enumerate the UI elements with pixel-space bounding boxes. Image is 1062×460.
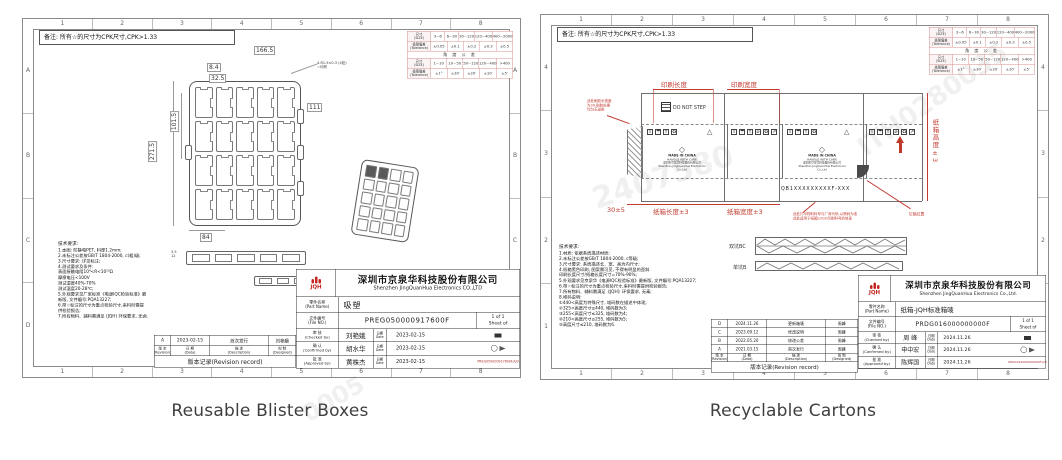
packaging-icon: ⇧: [731, 129, 737, 135]
stitch-note: 钉箱位置: [909, 212, 924, 217]
iso-pocket: [373, 193, 385, 206]
sign-name: 陈辉国: [896, 356, 926, 368]
grid-col-label: 4: [212, 19, 272, 29]
date-label: 日期 Date: [926, 344, 938, 356]
iso-pocket: [395, 211, 407, 224]
iso-pocket: [363, 178, 375, 191]
sign-name: 申中宏: [896, 344, 926, 356]
iso-pocket: [371, 207, 383, 220]
blister-pocket: [236, 121, 254, 152]
blister-pocket: [236, 189, 254, 220]
tol-size-range: 6~30: [967, 28, 981, 38]
column-ruler-top: 12345678: [551, 15, 1038, 25]
revision-record: A 2023-02-15 首次发行 刘艳娥 版 本 (Revision) 日 期…: [154, 335, 296, 368]
rev-letter: D: [712, 320, 729, 328]
date-label: 日期 Date: [374, 329, 387, 342]
tol-size-header: 尺寸 (SIZE): [408, 59, 432, 69]
tol-angle-range: 10~50: [969, 55, 985, 65]
row-ruler-left: 4321: [541, 25, 551, 369]
dim-height: 101.5: [170, 111, 179, 132]
packaging-icons-row: ⇧☂Y♻: [787, 129, 817, 135]
grid-row-label: 3: [1038, 111, 1048, 197]
sheet-cell: 1 of 1Sheet of: [1011, 317, 1046, 332]
tol-size-value: ±0.2: [464, 42, 480, 52]
grid-row-label: 1: [541, 284, 551, 369]
rev-desc: 首次发行: [210, 336, 270, 346]
tray-edge-tab: [297, 181, 304, 196]
print-width-dim-line: [727, 89, 779, 90]
tol-size-range: 120~400: [475, 32, 493, 42]
grid-col-label: 7: [917, 369, 978, 379]
shipping-mark: ◇ MADE IN CHINA HANDLE WITH CARE 深圳市京泉华科…: [654, 145, 710, 194]
rev-letter: A: [712, 345, 729, 353]
grid-row-label: 4: [1038, 25, 1048, 111]
grid-col-label: 4: [212, 367, 272, 377]
tol-angle-value: ±1°: [431, 69, 447, 79]
extension-line: [713, 89, 714, 123]
packaging-icon: ⇗: [771, 129, 777, 135]
dimension-line: [173, 81, 174, 226]
blister-drawing-sheet: 12345678 12345678 ABCD ABCD 备注: 所有☆的尺寸为C…: [22, 18, 521, 378]
tol-angle-range: >400: [497, 59, 513, 69]
tol-size-value: ±0.05: [953, 38, 969, 48]
grid-col-label: 5: [272, 367, 332, 377]
grid-col-label: 2: [612, 15, 673, 25]
cpk-note: 备注: 所有☆的尺寸为CPK尺寸,CPK>1.33: [39, 30, 235, 45]
tol-angle-band: 角 度 公 差: [930, 48, 1035, 55]
grid-col-label: 4: [734, 15, 795, 25]
projection-symbol-icon: [491, 345, 498, 352]
projection-symbol-icon: [1029, 347, 1035, 352]
sign-name: 刘艳娥: [339, 329, 374, 342]
grid-col-label: 8: [451, 367, 510, 377]
tol-angle-value: ±5′: [1019, 65, 1035, 75]
iso-pocket: [383, 209, 395, 222]
tol-tol-header: 极限偏差 (Tolerance): [408, 42, 432, 52]
tol-size-header: 尺寸 (SIZE): [930, 55, 954, 65]
iso-pocket: [397, 197, 409, 210]
tol-size-value: ±0.5: [1019, 38, 1035, 48]
screenshot-root: { "captions":{"left":"Reusable Blister B…: [0, 0, 1062, 460]
iso-pocket: [389, 169, 401, 182]
grid-col-label: 1: [33, 367, 93, 377]
blister-pocket: [195, 87, 213, 118]
company-name-en: Shenzhen JingQuanHua Electronics CO.,LTD: [373, 286, 482, 292]
tol-angle-range: 50~120: [463, 59, 479, 69]
tol-angle-range: 1~10: [953, 55, 969, 65]
dim-pitch: 32.5: [209, 74, 226, 83]
part-name-label: 零件名称 (Part Name): [297, 297, 339, 312]
tol-size-range: 30~120: [981, 28, 997, 38]
blister-pocket: [195, 155, 213, 186]
glue-flap-dim-line: [627, 204, 641, 205]
tolerance-table: 尺寸 (SIZE)3~66~3030~120120~400400~2000 极限…: [407, 31, 513, 79]
signature-rows: 审 核 (Checked by) 周 峰 日期 Date 2024.11.26 …: [859, 332, 1010, 368]
grid-row-label: 4: [541, 25, 551, 111]
caption-left: Reusable Blister Boxes: [171, 401, 368, 421]
grid-col-label: 2: [93, 367, 153, 377]
packaging-icon: Y: [747, 129, 753, 135]
carton-width-label: 纸箱宽度±3: [727, 206, 763, 216]
sign-date: 2023-02-15: [387, 329, 435, 342]
packaging-icons-row: ⇧☂Y⌀♻⇗: [869, 129, 915, 135]
do-not-step-mark: DO NOT STEP: [661, 102, 728, 112]
tol-angle-range: 1~10: [431, 59, 447, 69]
rev-header: 描 述 (Description): [210, 346, 270, 356]
tol-size-range: 400~2000: [1015, 28, 1035, 38]
single-wall-label: 单坑B: [733, 264, 746, 271]
tol-size-value: ±0.5: [497, 42, 513, 52]
tol-size-range: 30~120: [459, 32, 475, 42]
grid-row-label: B: [23, 114, 33, 199]
packaging-icon: ⌀: [893, 129, 899, 135]
date-label: 日期 Date: [374, 342, 387, 355]
sign-role: 确 认 (Confirmed by): [859, 344, 896, 356]
grid-col-label: 2: [93, 19, 153, 29]
file-ref: PREG050000917600F.A/0: [477, 360, 518, 364]
grid-col-label: 3: [673, 15, 734, 25]
packaging-icon: Y: [803, 129, 809, 135]
sheet-cell: 1 of 1Sheet of: [477, 313, 520, 329]
packaging-icon: ☂: [655, 129, 661, 135]
warning-triangle-icon: △: [844, 129, 849, 136]
iso-pocket: [385, 195, 397, 208]
tol-size-header: 尺寸 (SIZE): [408, 32, 432, 42]
iso-pocket: [375, 180, 387, 193]
date-label: 日期 Date: [926, 356, 938, 368]
blister-tray-iso-view: [350, 159, 419, 243]
carton-top-edge: [641, 93, 922, 94]
tol-size-value: ±0.3: [480, 42, 496, 52]
tol-angle-range: >400: [1019, 55, 1035, 65]
iso-pocket: [387, 182, 399, 195]
part-name-label: 零件名称 (Part Name): [859, 302, 896, 316]
grid-col-label: 8: [978, 369, 1038, 379]
tol-angle-value: ±10′: [480, 69, 496, 79]
do-not-step-icon: [661, 102, 671, 112]
rev-by: 周峰: [826, 320, 858, 328]
code-print-note: 此处打印物料料号与厂商代码,以喷码为准 此处适用于纸箱LOGO印刷料号的信息: [793, 212, 857, 221]
extension-line: [653, 89, 654, 123]
blister-pocket: [195, 189, 213, 220]
blister-pocket: [216, 121, 234, 152]
grid-row-label: C: [23, 199, 33, 284]
grid-col-label: 6: [332, 367, 392, 377]
tol-angle-value: ±30′: [969, 65, 985, 75]
rev-date: 2023.09.12: [728, 328, 767, 336]
grid-col-label: 2: [612, 369, 673, 379]
blister-pocket: [257, 189, 275, 220]
dim-total-height: 271.5: [148, 141, 157, 162]
packaging-icon: ♻: [763, 129, 769, 135]
tol-angle-range: 120~400: [1001, 55, 1019, 65]
packaging-icon: ⇧: [647, 129, 653, 135]
sign-role: 确 认 (Confirmed by): [297, 342, 339, 355]
iso-pocket: [368, 220, 380, 233]
jqh-logo-text: JQH: [310, 284, 321, 290]
file-no-value: PREG050000917600F: [339, 313, 477, 329]
packaging-icon: ⌀: [755, 129, 761, 135]
material-code: QB1XXXXXXXXXF-XXX: [781, 186, 850, 191]
iso-pocket: [402, 171, 414, 184]
blister-pocket: [257, 121, 275, 152]
print-length-dim-line: [653, 89, 713, 90]
rev-by: 周峰: [826, 328, 858, 336]
tolerance-table: 尺寸 (SIZE)3~66~3030~120120~400400~2000 极限…: [929, 27, 1035, 75]
file-no-label: 文件编号 (File NO.): [859, 317, 896, 332]
blister-pocket: [257, 87, 275, 118]
packaging-icon: ☂: [739, 129, 745, 135]
date-label: 日期 Date: [926, 332, 938, 344]
tol-angle-value: ±20′: [986, 65, 1002, 75]
sign-name: 黄株杰: [339, 355, 374, 368]
rev-header: 日 期 (Data): [171, 346, 210, 356]
grid-col-label: 6: [856, 15, 917, 25]
rev-date: 2021.03.15: [728, 345, 767, 353]
rev-title: 版本记录(Revision record): [155, 356, 296, 367]
tol-size-range: 120~400: [997, 28, 1015, 38]
section-pocket: [260, 254, 278, 262]
packaging-icon: ☂: [795, 129, 801, 135]
column-ruler-top: 12345678: [33, 19, 510, 29]
blister-pocket: [257, 155, 275, 186]
rev-header: 描 述 (Description): [767, 354, 827, 362]
iso-pocket: [393, 224, 405, 237]
title-block: JQH 深圳市京泉华科技股份有限公司 Shenzhen JingQuanHua …: [858, 275, 1046, 369]
grid-col-label: 8: [451, 19, 510, 29]
company-logo-cell: JQH: [859, 276, 892, 302]
tol-size-value: ±0.2: [986, 38, 1002, 48]
grid-row-label: D: [23, 283, 33, 367]
company-name-en: Shenzhen JingQuanHua Electronics Co.,Ltd…: [920, 291, 1018, 297]
sign-role: 批 准 (Approved by): [859, 356, 896, 368]
section-pocket: [215, 254, 233, 262]
file-no-value: PRDG016000000000F: [896, 317, 1011, 332]
sign-date: 2024.11.26: [938, 356, 977, 368]
dimension-line: [189, 230, 225, 231]
company-name-cn: 深圳市京泉华科技股份有限公司: [905, 280, 1031, 291]
tol-angle-range: 120~400: [479, 59, 497, 69]
packaging-icon: Y: [885, 129, 891, 135]
rev-letter: C: [712, 328, 729, 336]
blister-tray-front-view: [189, 81, 301, 226]
rev-desc: 更新箱唛: [767, 320, 827, 328]
jqh-logo: [311, 277, 321, 284]
meta-mark: [1024, 336, 1031, 340]
do-not-step-text: DO NOT STEP: [673, 104, 706, 109]
blister-pocket: [277, 189, 295, 220]
projection-symbol-icon: [499, 346, 505, 351]
carton-bottom-edge: [641, 201, 922, 202]
tol-size-range: 3~6: [431, 32, 445, 42]
meta-mark: [495, 333, 502, 337]
tray-edge-tab: [297, 145, 304, 160]
sign-role: 批 准 (Approved by): [297, 355, 339, 368]
dim-total-width: 166.5: [254, 46, 275, 55]
extension-line: [779, 89, 780, 123]
carton-height-dim-line: [927, 93, 928, 201]
rev-date: 2024.11.26: [728, 320, 767, 328]
grid-col-label: 6: [332, 19, 392, 29]
rev-header: 拟 制 (Designed): [269, 346, 296, 356]
jqh-logo: [870, 282, 880, 289]
grid-row-label: A: [23, 29, 33, 114]
grid-row-label: 2: [1038, 198, 1048, 284]
blister-pocket: [216, 87, 234, 118]
this-way-up-arrow: [896, 136, 904, 143]
panel-divider: [727, 124, 728, 178]
tol-tol-header: 极限偏差 (Tolerance): [930, 65, 954, 75]
dimension-line: [181, 93, 182, 159]
glue-flap-dim-label: 30±5: [607, 206, 625, 214]
tol-angle-value: ±1°: [953, 65, 969, 75]
caption-right: Recyclable Cartons: [710, 401, 876, 421]
title-block: JQH 深圳市京泉华科技股份有限公司 Shenzhen JingQuanHua …: [296, 269, 520, 369]
rev-header: 版 本 (Revision): [712, 354, 729, 362]
mark-line4: Shenzhen JingQuanHua Electronics Co.,Ltd: [794, 165, 850, 172]
tech-lines: 1.材质: 依据系统描述材质; 2.未标注公差按GB/T 1804-2000, …: [559, 250, 731, 327]
rev-header: 拟 制 (Designed): [826, 354, 858, 362]
rev-header: 版 本 (Revision): [155, 346, 172, 356]
tol-size-value: ±0.1: [969, 38, 985, 48]
grid-col-label: 1: [551, 369, 612, 379]
grid-col-label: 1: [551, 15, 612, 25]
iso-pocket: [358, 205, 370, 218]
print-width-label: 印刷宽度: [731, 79, 757, 89]
carton-width-dim-line: [725, 204, 780, 205]
packaging-icon: ♻: [671, 129, 677, 135]
company-logo-cell: JQH: [297, 270, 337, 297]
sign-role: 审 核 (Checked by): [859, 332, 896, 344]
carton-length-dim-line: [641, 204, 725, 205]
rev-date: 2023-02-15: [171, 336, 210, 346]
iso-pocket: [400, 184, 412, 197]
diamond-logo-icon: ◇: [794, 145, 850, 154]
cpk-note: 备注: 所有☆的尺寸为CPK尺寸,CPK>1.33: [557, 27, 753, 42]
iso-pocket-marked: [365, 165, 377, 178]
sign-date: 2024.11.26: [938, 332, 977, 344]
print-length-label: 印刷长度: [661, 79, 687, 89]
panel-divider: [782, 124, 783, 178]
tol-angle-range: 10~50: [447, 59, 463, 69]
tol-size-value: ±0.05: [431, 42, 447, 52]
dim-pitch: 8.4: [207, 63, 221, 72]
blister-pocket: [277, 155, 295, 186]
tol-size-range: 3~6: [953, 28, 967, 38]
projection-symbol-icon: [1020, 347, 1027, 354]
single-wall-corrugation-icon: [755, 261, 903, 271]
tray-edge-tab: [297, 109, 304, 124]
grid-row-label: 2: [541, 198, 551, 284]
tol-size-range: 400~2000: [493, 32, 513, 42]
packaging-icon: Y: [663, 129, 669, 135]
company-name-cn: 深圳市京泉华科技股份有限公司: [358, 275, 498, 286]
blister-pocket: [236, 87, 254, 118]
packaging-icons-row: ⇧☂Y⌀♻⇗: [731, 129, 777, 135]
tol-size-value: ±0.1: [447, 42, 463, 52]
carton-length-label: 纸箱长度±3: [653, 206, 689, 216]
panel-divider: [863, 93, 864, 201]
blister-pocket: [277, 121, 295, 152]
grid-col-label: 7: [392, 19, 452, 29]
rev-date: 2022.05.20: [728, 337, 767, 345]
grid-row-label: B: [510, 114, 520, 199]
packaging-icon: ♻: [811, 129, 817, 135]
grid-col-label: 1: [33, 19, 93, 29]
tol-angle-value: ±30′: [447, 69, 463, 79]
this-way-up-arrow: [899, 143, 902, 153]
signature-rows: 审 核 (Checked by) 刘艳娥 日期 Date 2023-02-15 …: [297, 329, 477, 368]
blister-pocket: [216, 155, 234, 186]
section-pocket: [259, 278, 272, 284]
rev-letter: A: [155, 336, 172, 346]
packaging-icon: ⇧: [787, 129, 793, 135]
packaging-icon: ⇧: [869, 129, 875, 135]
double-wall-corrugation-icon: [755, 237, 907, 255]
mark-line4: Shenzhen JingQuanHua Electronics Co.,Ltd: [654, 165, 710, 172]
column-ruler-bottom: 12345678: [33, 367, 510, 377]
rev-by: 周峰: [826, 345, 858, 353]
leader-note: 4-R1.5±0.3 (4处) ☆均布: [317, 61, 347, 69]
tol-angle-band: 角 度 公 差: [408, 52, 513, 59]
rev-title: 版本记录(Revision record): [712, 362, 858, 372]
iso-pocket: [356, 218, 368, 231]
double-wall-label: 双坑BC: [729, 243, 746, 250]
dim-right: 111: [307, 103, 322, 112]
grid-col-label: 7: [917, 15, 978, 25]
diamond-logo-icon: ◇: [654, 145, 710, 154]
revision-record: D 2024.11.26 更新箱唛 周峰 C 2023.09.12 修改说明 周…: [711, 319, 858, 373]
tol-angle-value: ±10′: [1002, 65, 1018, 75]
tol-size-range: 6~30: [445, 32, 459, 42]
packaging-icon: ⇗: [909, 129, 915, 135]
glue-flap-hatched: [627, 126, 643, 178]
carton-drawing-sheet: 12345678 12345678 4321 4321 备注: 所有☆的尺寸为C…: [540, 14, 1049, 380]
iso-pocket: [381, 222, 393, 235]
blister-pocket: [195, 121, 213, 152]
warning-triangle-icon: △: [707, 129, 712, 136]
tol-angle-value: ±5′: [497, 69, 513, 79]
rev-desc: 修改公差: [767, 337, 827, 345]
grid-col-label: 8: [978, 15, 1038, 25]
section-pocket: [237, 254, 255, 262]
rev-by: 周峰: [826, 337, 858, 345]
tech-lines: 1.本图: 防静电PET, 料厚1.2mm; 2.未标注公差按GB/T 1804…: [58, 247, 214, 319]
tol-angle-range: 50~120: [985, 55, 1001, 65]
technical-requirements: 技术要求: 1.材质: 依据系统描述材质; 2.未标注公差按GB/T 1804-…: [559, 244, 731, 327]
tol-size-header: 尺寸 (SIZE): [930, 28, 954, 38]
blister-pocket: [236, 155, 254, 186]
jqh-logo-text: JQH: [869, 289, 880, 295]
grid-row-label: 3: [541, 111, 551, 197]
grid-col-label: 5: [795, 15, 856, 25]
drawing-meta-cells: PRDG016000000000F.A/0: [1010, 332, 1046, 368]
panel-edge: [922, 93, 923, 201]
tol-size-value: ±0.3: [1002, 38, 1018, 48]
tol-tol-header: 极限偏差 (Tolerance): [408, 69, 432, 79]
iso-pocket: [360, 192, 372, 205]
tol-tol-header: 极限偏差 (Tolerance): [930, 38, 954, 48]
grid-col-label: 3: [153, 19, 213, 29]
rev-desc: 修改说明: [767, 328, 827, 336]
rev-header: 日 期 (Data): [728, 354, 767, 362]
file-ref: PRDG016000000000F.A/0: [1008, 360, 1047, 364]
sign-role: 审 核 (Checked by): [297, 329, 339, 342]
packaging-icon: ♻: [901, 129, 907, 135]
tol-angle-value: ±20′: [464, 69, 480, 79]
grid-col-label: 6: [856, 369, 917, 379]
rev-by: 刘艳娥: [269, 336, 296, 346]
